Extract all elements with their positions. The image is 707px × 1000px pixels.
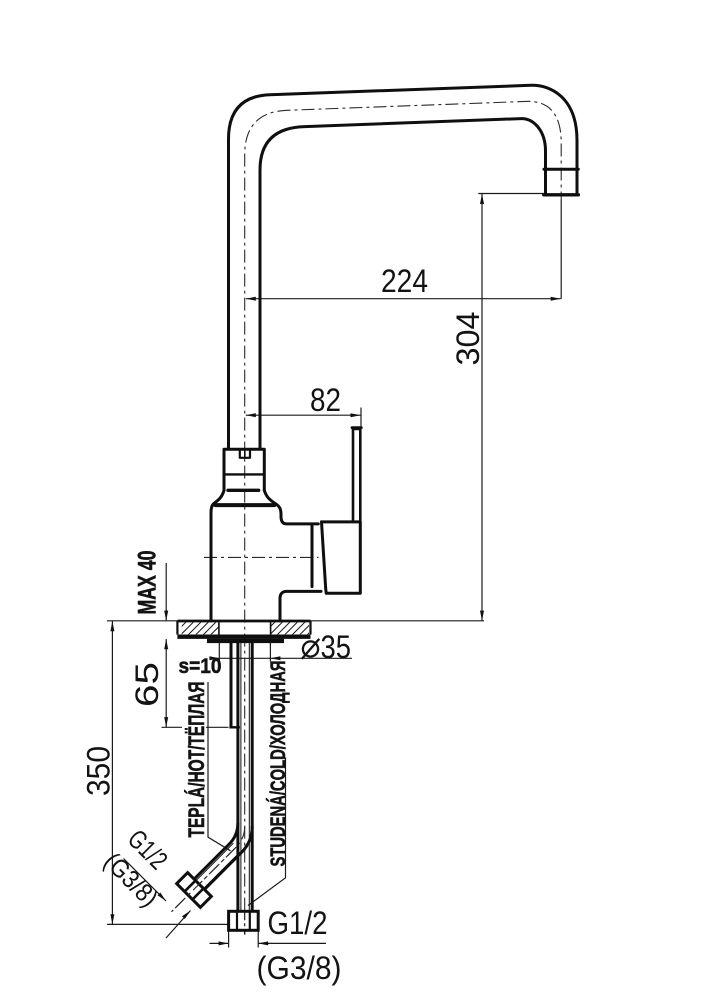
svg-text:35: 35 — [321, 629, 352, 665]
svg-text:STUDENÁ/COLD/ХОЛОДНАЯ: STUDENÁ/COLD/ХОЛОДНАЯ — [267, 661, 290, 867]
svg-text:MAX 40: MAX 40 — [134, 551, 162, 615]
svg-text:s=10: s=10 — [179, 655, 222, 678]
svg-text:G1/2: G1/2 — [268, 905, 328, 941]
svg-text:350: 350 — [81, 746, 117, 796]
svg-text:224: 224 — [381, 263, 428, 299]
svg-text:TEPLÁ/HOT/ТЁПЛАЯ: TEPLÁ/HOT/ТЁПЛАЯ — [184, 682, 209, 838]
svg-text:(G3/8): (G3/8) — [257, 950, 342, 986]
svg-text:65: 65 — [129, 662, 165, 707]
svg-text:82: 82 — [310, 382, 341, 418]
svg-text:304: 304 — [450, 312, 486, 366]
